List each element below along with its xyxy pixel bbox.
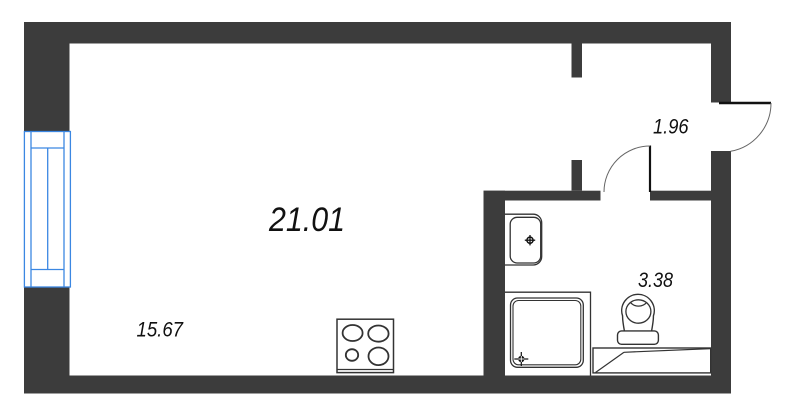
svg-text:21.01: 21.01 <box>268 201 345 239</box>
svg-text:3.38: 3.38 <box>638 269 673 292</box>
svg-text:15.67: 15.67 <box>137 319 185 342</box>
svg-text:1.96: 1.96 <box>653 115 689 138</box>
